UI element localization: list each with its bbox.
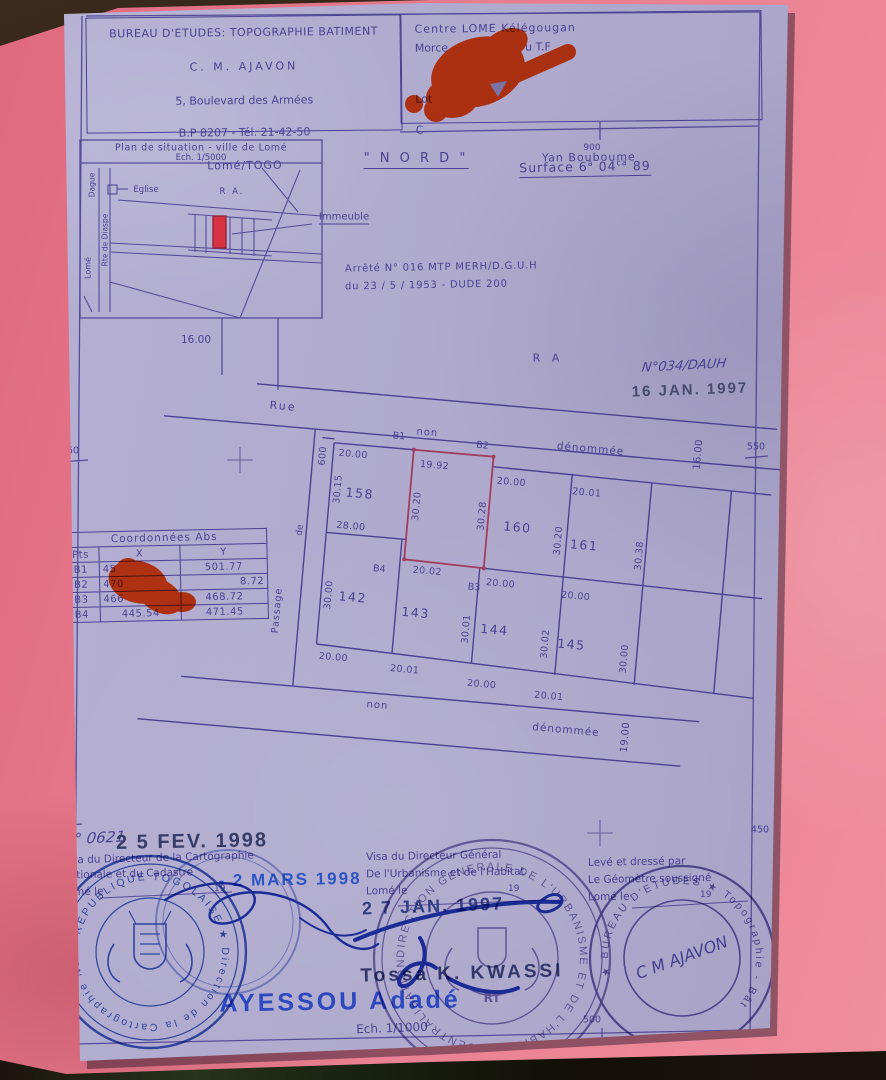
received-handwritten-ref: N°034/DAUH [641,356,727,375]
parcel-c: C [416,120,776,137]
road-width-dim: 16.00 [181,334,211,346]
point-b3: B3 [467,581,480,593]
street-bottom-non: non [366,699,389,712]
north-label: " N O R D " [364,151,469,169]
map-street-label-1: Dague [88,173,97,198]
lot-number-144: 144 [480,621,510,638]
surface-value-rest: 89 [628,158,651,173]
lot-number-161: 161 [569,536,599,553]
grid-label-900: 900 [583,143,600,153]
street-top-name: Rue [269,399,297,414]
area-label: R A [533,352,564,365]
map-plot-highlight [213,216,226,248]
carto-visa-line1: Visa du Directeur de la Cartographie [62,849,254,866]
parcel-centre: Centre LOME Kélégougan [415,19,775,36]
photo-of-survey-document: BUREAU D'ETUDES: TOPOGRAPHIE BATIMENT C.… [0,0,886,1080]
surface-value-ha: Surface 6 [519,159,588,175]
grid-label-500: 500 [583,1015,601,1026]
parcel-lot: Lot [415,89,775,106]
letterhead-address: 5, Boulevard des Armées [95,92,393,108]
coordinates-table: Coordonnées Abs Pts X Y B1 45 501.77 B2 … [61,528,269,623]
survey-plan-sheet: BUREAU D'ETUDES: TOPOGRAPHIE BATIMENT C.… [0,0,886,1080]
parcel-morcellement-start: Morce [415,41,448,54]
coords-b1-x: 45 [99,560,180,577]
surface-label: Surface 6a 04ca 89 [519,158,651,178]
lot-number-145: 145 [557,636,587,653]
parcel-info-box: Centre LOME Kélégougan Morce u T.F Lot C… [399,10,762,124]
map-city-label: Lomé [84,257,93,279]
urbanisme-visa-year: 19 [508,884,519,894]
geometre-line1: Levé et dressé par [588,855,686,869]
urbanisme-visa-lome-le: Lomé le [366,885,408,898]
surface-sup-ca: ca [616,158,627,167]
parcel-morcellement-end: u T.F [525,40,551,53]
urbanisme-date-stamp: 2 7 JAN. 1997 [362,894,505,920]
passage-de-label: de [295,524,306,536]
urbanisme-visa-line2: De l'Urbanisme et de l'Habitat [366,866,525,881]
coords-b2-x: 470 [100,575,181,592]
block-tick-600: 600 [317,446,330,466]
lot-number-158: 158 [345,484,375,501]
letterhead-phone: B.P 8207 - Tél. 21-42-50 [96,124,394,140]
lot-number-143: 143 [401,604,431,621]
point-b4: B4 [373,563,386,575]
geometre-year: 19 [700,890,711,900]
surveyor-letterhead-box: BUREAU D'ETUDES: TOPOGRAPHIE BATIMENT C.… [85,14,402,133]
surface-value-ca: 04 [594,159,617,174]
arrete-line1: Arrêté N° 016 MTP MERH/D.G.U.H [345,260,538,274]
point-b1: B1 [392,430,405,442]
letterhead-firm: BUREAU D'ETUDES: TOPOGRAPHIE BATIMENT [95,24,393,40]
coords-b4-y: 471.45 [181,603,268,620]
urbanisme-stamp-emblem-text: RT [484,991,502,1005]
carto-blue-date-stamp: - 2 MARS 1998 [218,869,361,891]
coords-b3-x: 466 [100,590,181,607]
plan-scale: Ech. 1/1000 [356,1020,428,1036]
carto-visa-line2: Nationale et du Cadastre [62,866,193,881]
letterhead-name: C. M. AJAVON [95,58,393,74]
situation-scale: Ech. 1/5000 [176,153,227,163]
map-district-label: R A. [220,187,245,197]
coords-b4-x: 445.54 [100,605,181,622]
coords-col-x: X [99,545,180,562]
parcel-morcellement: Morce u T.F [415,38,775,55]
letterhead-city: Lomé/TOGO [96,157,394,173]
signature-cartography [165,883,378,949]
geometre-line2: Le Géomètre soussigné [588,872,712,886]
lot-number-160: 160 [503,518,533,535]
arrete-line2: du 23 / 5 / 1953 - DUDE 200 [345,279,508,293]
received-date-stamp: 16 JAN. 1997 [631,379,748,400]
approver-name: AYESSOU Adadé [219,985,461,1018]
geometre-lome-le: Lomé le [588,891,630,904]
situation-title: Plan de situation - ville de Lomé [115,143,287,154]
grid-label-450-right: 450 [751,825,769,836]
point-b2: B2 [476,440,489,452]
map-church-label: Eglise [133,185,158,195]
geometre-stamp-signature: C M AJAVON [633,932,730,983]
urbanisme-signatory-name: Tossa K. KWASSI [360,960,564,987]
street-top-non: non [416,426,439,439]
urbanisme-visa-line1: Visa du Directeur Général [366,849,502,863]
immeuble-label: Immeuble [319,212,369,225]
lot-number-142: 142 [338,588,368,605]
map-street-label-2: Rte de Diaspe [101,214,110,267]
